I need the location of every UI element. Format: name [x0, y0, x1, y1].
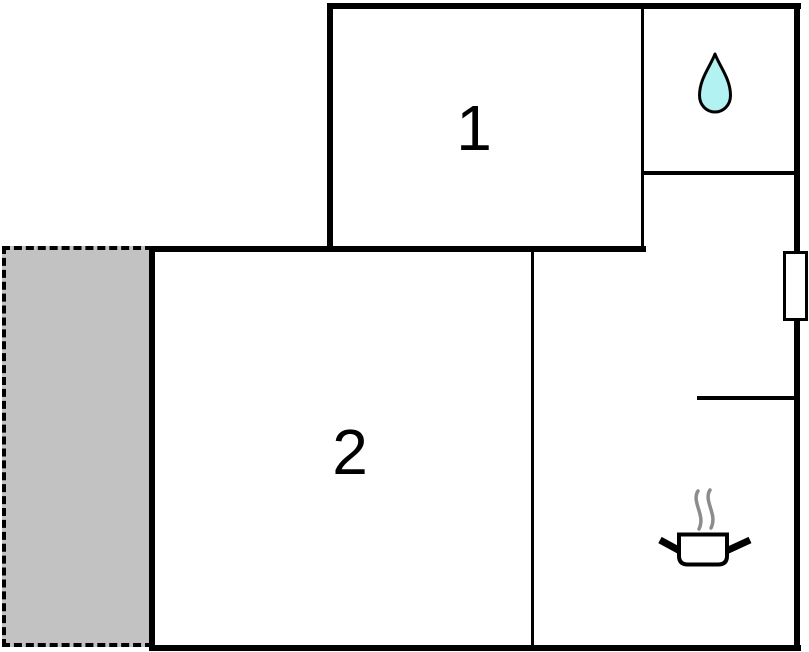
wall-interior-room1-right [641, 3, 644, 252]
cooking-pot-icon [655, 486, 755, 574]
floor-plan: 1 2 [0, 0, 809, 652]
wall-room2-left [149, 246, 155, 651]
steam-line-right [708, 490, 713, 528]
wall-interior-room2-right [531, 248, 534, 645]
wall-room1-left [327, 3, 333, 252]
room-1-label: 1 [456, 96, 492, 160]
wall-bottom [149, 645, 801, 651]
window-marker [783, 251, 808, 321]
terrace-area [2, 246, 153, 647]
pot-body [679, 535, 727, 565]
wall-interior-kitchen-partition [697, 396, 794, 400]
wall-top [327, 3, 801, 9]
water-drop-shape [700, 54, 731, 112]
steam-line-left [696, 491, 701, 529]
wall-right [794, 3, 800, 651]
water-drop-icon [696, 51, 734, 115]
wall-mid-horizontal [149, 246, 646, 252]
wall-interior-bathroom-bottom [644, 171, 794, 175]
room-2-label: 2 [332, 420, 368, 484]
